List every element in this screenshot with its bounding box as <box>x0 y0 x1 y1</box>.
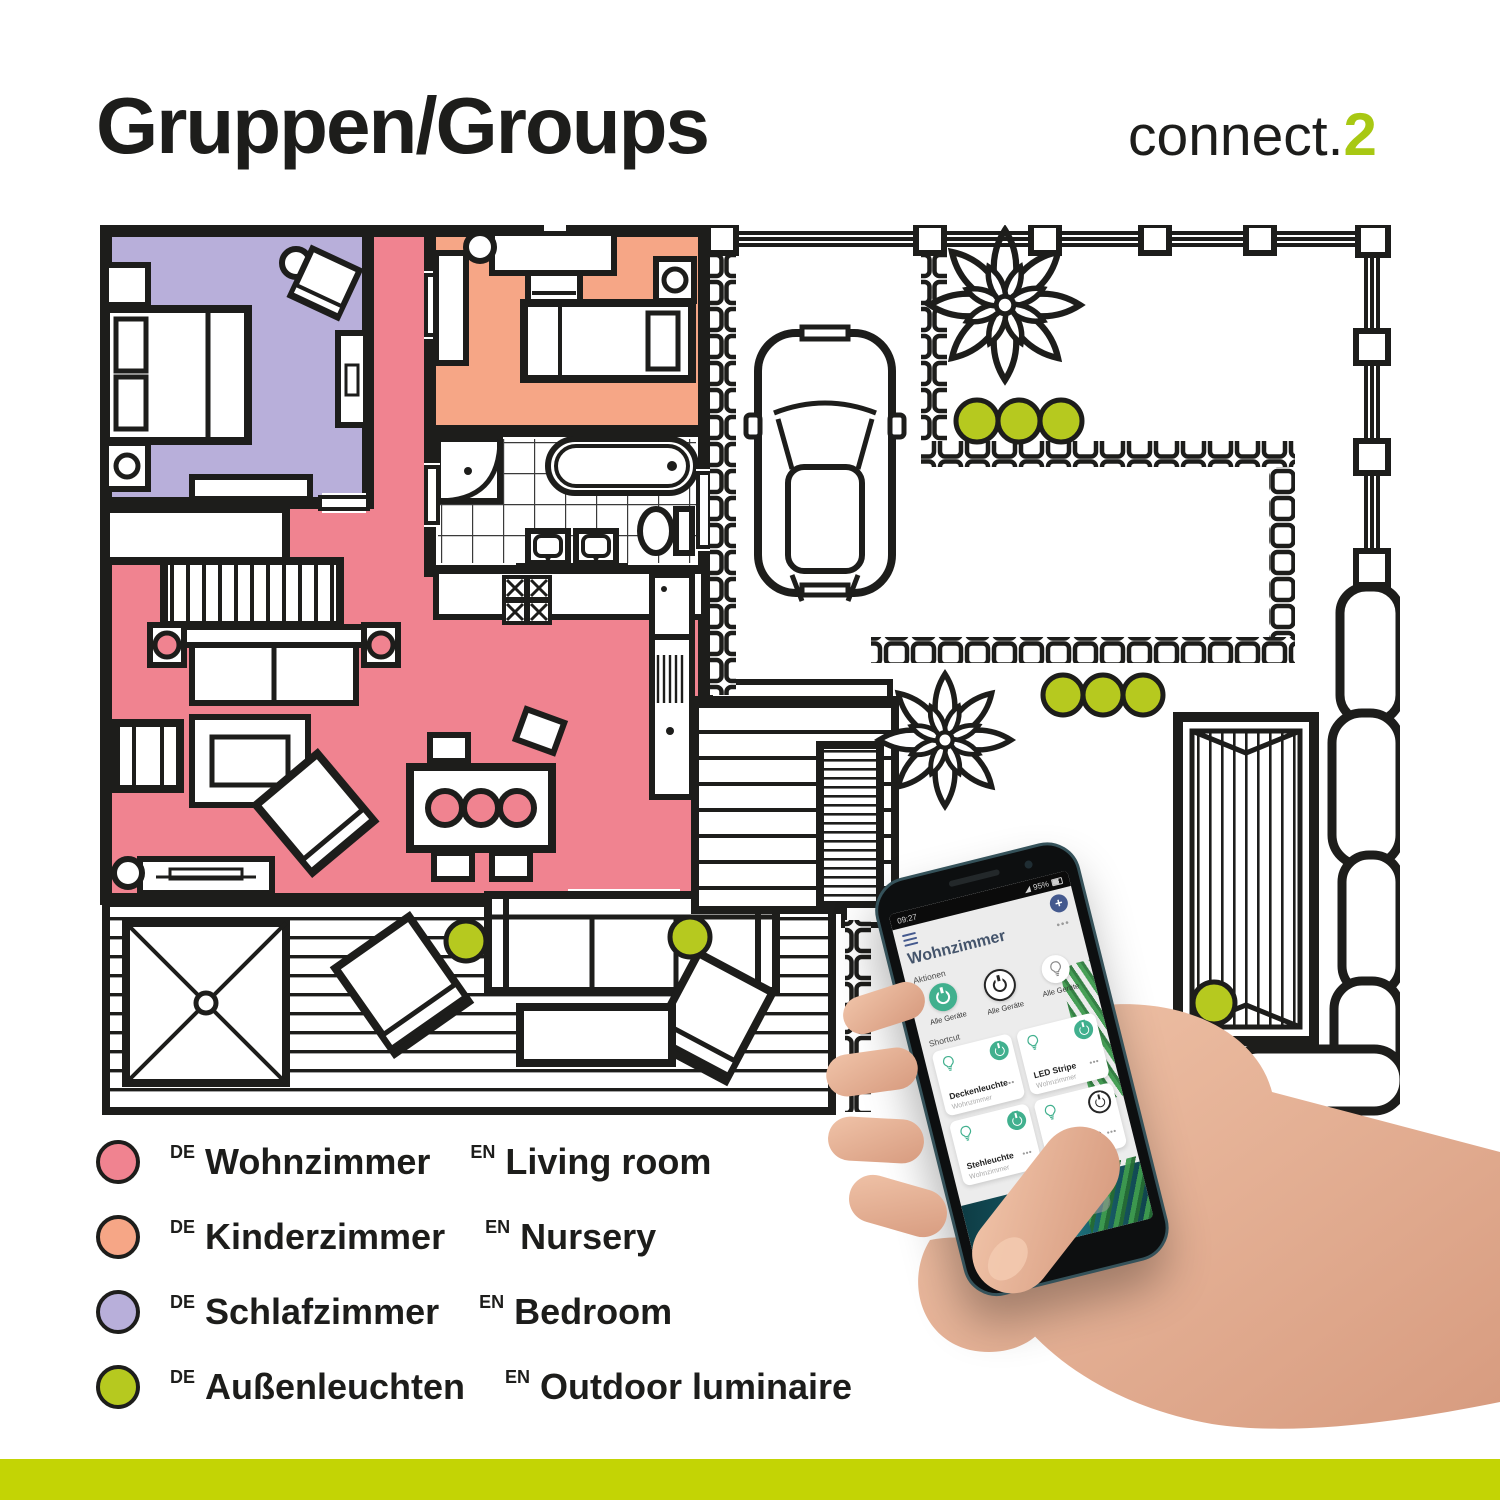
nav-dot-active-icon[interactable] <box>1083 1201 1091 1209</box>
deck <box>106 895 832 1111</box>
brand-logo-text: connect. <box>1128 104 1343 168</box>
tile-more-icon[interactable]: ••• <box>1106 1127 1118 1138</box>
cobble-path <box>921 441 1295 467</box>
legend-name-de: Wohnzimmer <box>205 1141 430 1183</box>
status-time: 09:27 <box>896 912 918 926</box>
legend-name-en: Bedroom <box>514 1291 672 1333</box>
dresser <box>338 333 366 425</box>
power-button[interactable] <box>1005 1109 1028 1132</box>
brand-logo-accent: 2 <box>1343 101 1376 168</box>
outdoor-light-dot <box>956 400 998 442</box>
double-bed <box>106 309 248 441</box>
nightstand-lamp <box>656 259 694 301</box>
cobble-path <box>1269 467 1295 663</box>
tile-tischleuchte[interactable]: Tischleuchte ••• Wohnzimmer <box>1033 1082 1128 1166</box>
action-all-devices-off[interactable]: Alle Geräte <box>972 964 1031 1019</box>
outdoor-light-dot <box>1040 400 1082 442</box>
legend-dot-bedroom <box>96 1290 140 1334</box>
sideboard <box>140 859 272 893</box>
outdoor-light-dot <box>1083 675 1123 715</box>
lang-tag-en: EN <box>470 1142 495 1163</box>
nav-dot-icon[interactable] <box>1068 1204 1079 1215</box>
outdoor-light-dot <box>998 400 1040 442</box>
legend-name-de: Außenleuchten <box>205 1366 465 1408</box>
bulb-icon <box>1041 1102 1060 1123</box>
legend-row-outdoor: DE Außenleuchten EN Outdoor luminaire <box>96 1363 852 1410</box>
power-button[interactable] <box>1072 1018 1095 1041</box>
nightstand-lamp <box>106 443 148 489</box>
tile-more-icon[interactable]: ••• <box>1004 1078 1016 1089</box>
lang-tag-de: DE <box>170 1217 195 1238</box>
tile-stehleuchte[interactable]: Stehleuchte ••• Wohnzimmer <box>949 1103 1044 1187</box>
cobble-path <box>921 241 947 467</box>
stove <box>504 577 550 623</box>
parasol <box>126 923 286 1083</box>
page-title: Gruppen/Groups <box>96 86 708 166</box>
outdoor-light-dot <box>446 921 486 961</box>
home-icon[interactable]: ⌂ <box>1023 1214 1032 1226</box>
lang-tag-de: DE <box>170 1367 195 1388</box>
legend-name-de: Schlafzimmer <box>205 1291 439 1333</box>
flower-icon <box>879 674 1011 806</box>
bathroom <box>430 431 704 571</box>
legend-row-living: DE Wohnzimmer EN Living room <box>96 1138 852 1185</box>
shelf <box>192 477 310 499</box>
shower <box>438 439 500 501</box>
nightstand <box>106 265 148 305</box>
brand-logo: connect.2 <box>1128 100 1377 169</box>
armchair <box>116 723 180 789</box>
lang-tag-de: DE <box>170 1142 195 1163</box>
bathtub <box>548 439 696 493</box>
legend-dot-outdoor <box>96 1365 140 1409</box>
cobble-path <box>871 637 1295 663</box>
bottom-accent-bar <box>0 1459 1500 1500</box>
lang-tag-en: EN <box>505 1367 530 1388</box>
power-icon <box>991 977 1008 994</box>
power-button[interactable] <box>988 1039 1011 1062</box>
outdoor-light-dot <box>670 917 710 957</box>
power-button[interactable] <box>1086 1088 1114 1116</box>
legend-name-en: Living room <box>505 1141 711 1183</box>
counter-fridge <box>652 575 692 797</box>
tile-led-stripe[interactable]: LED Stripe ••• Wohnzimmer <box>1016 1012 1111 1096</box>
ball <box>114 859 142 887</box>
bulb-icon <box>957 1123 976 1144</box>
legend: DE Wohnzimmer EN Living room DE Kinderzi… <box>96 1138 852 1438</box>
tile-more-icon[interactable]: ••• <box>1022 1148 1034 1159</box>
bulb-icon <box>940 1054 959 1075</box>
pergola <box>695 682 906 925</box>
toilet <box>640 509 692 553</box>
legend-dot-nursery <box>96 1215 140 1259</box>
nav-dot-icon[interactable] <box>1052 1207 1063 1218</box>
action-label: Alle Geräte <box>923 1008 974 1029</box>
outdoor-light-dot <box>1043 675 1083 715</box>
wardrobe <box>436 253 466 363</box>
lang-tag-en: EN <box>485 1217 510 1238</box>
power-icon <box>935 989 952 1006</box>
nav-dot-icon[interactable] <box>1037 1211 1048 1222</box>
legend-name-de: Kinderzimmer <box>205 1216 445 1258</box>
outdoor-light-dot <box>1123 675 1163 715</box>
signal-icon: ◢ <box>1023 883 1031 893</box>
deck-table <box>520 1007 672 1063</box>
legend-row-nursery: DE Kinderzimmer EN Nursery <box>96 1213 852 1260</box>
action-all-devices-on[interactable]: Alle Geräte <box>916 978 975 1033</box>
legend-name-en: Outdoor luminaire <box>540 1366 852 1408</box>
bulb-icon <box>1024 1032 1043 1053</box>
tile-deckenleuchte[interactable]: Deckenleuchte ••• Wohnzimmer <box>931 1033 1026 1117</box>
cobble-path <box>710 241 736 695</box>
lamp-icon <box>1046 959 1065 980</box>
single-bed <box>524 303 692 379</box>
lang-tag-de: DE <box>170 1292 195 1313</box>
battery-percent: 95% <box>1032 879 1050 892</box>
battery-icon <box>1051 876 1063 885</box>
legend-dot-living <box>96 1140 140 1184</box>
ball <box>466 233 494 261</box>
lang-tag-en: EN <box>479 1292 504 1313</box>
car-icon <box>746 327 904 601</box>
legend-name-en: Nursery <box>520 1216 656 1258</box>
tile-more-icon[interactable]: ••• <box>1089 1057 1101 1068</box>
legend-row-bedroom: DE Schlafzimmer EN Bedroom <box>96 1288 852 1335</box>
phone-speaker <box>948 869 1000 887</box>
phone-camera <box>1024 860 1034 870</box>
